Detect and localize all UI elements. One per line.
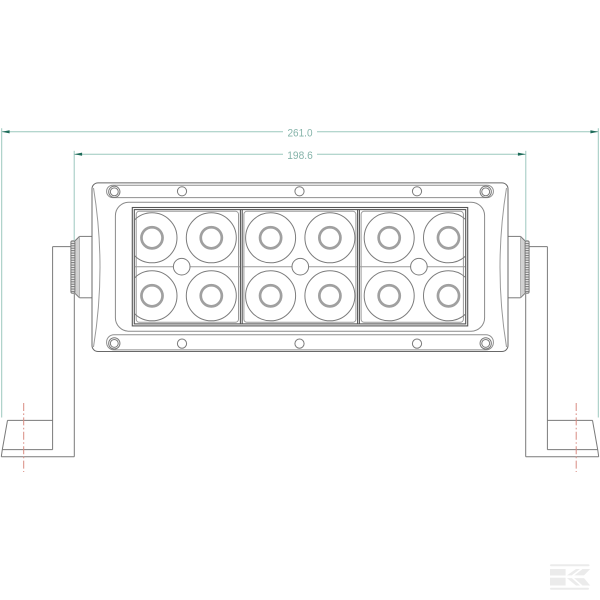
svg-text:261.0: 261.0: [288, 127, 313, 139]
svg-text:198.6: 198.6: [287, 150, 313, 162]
